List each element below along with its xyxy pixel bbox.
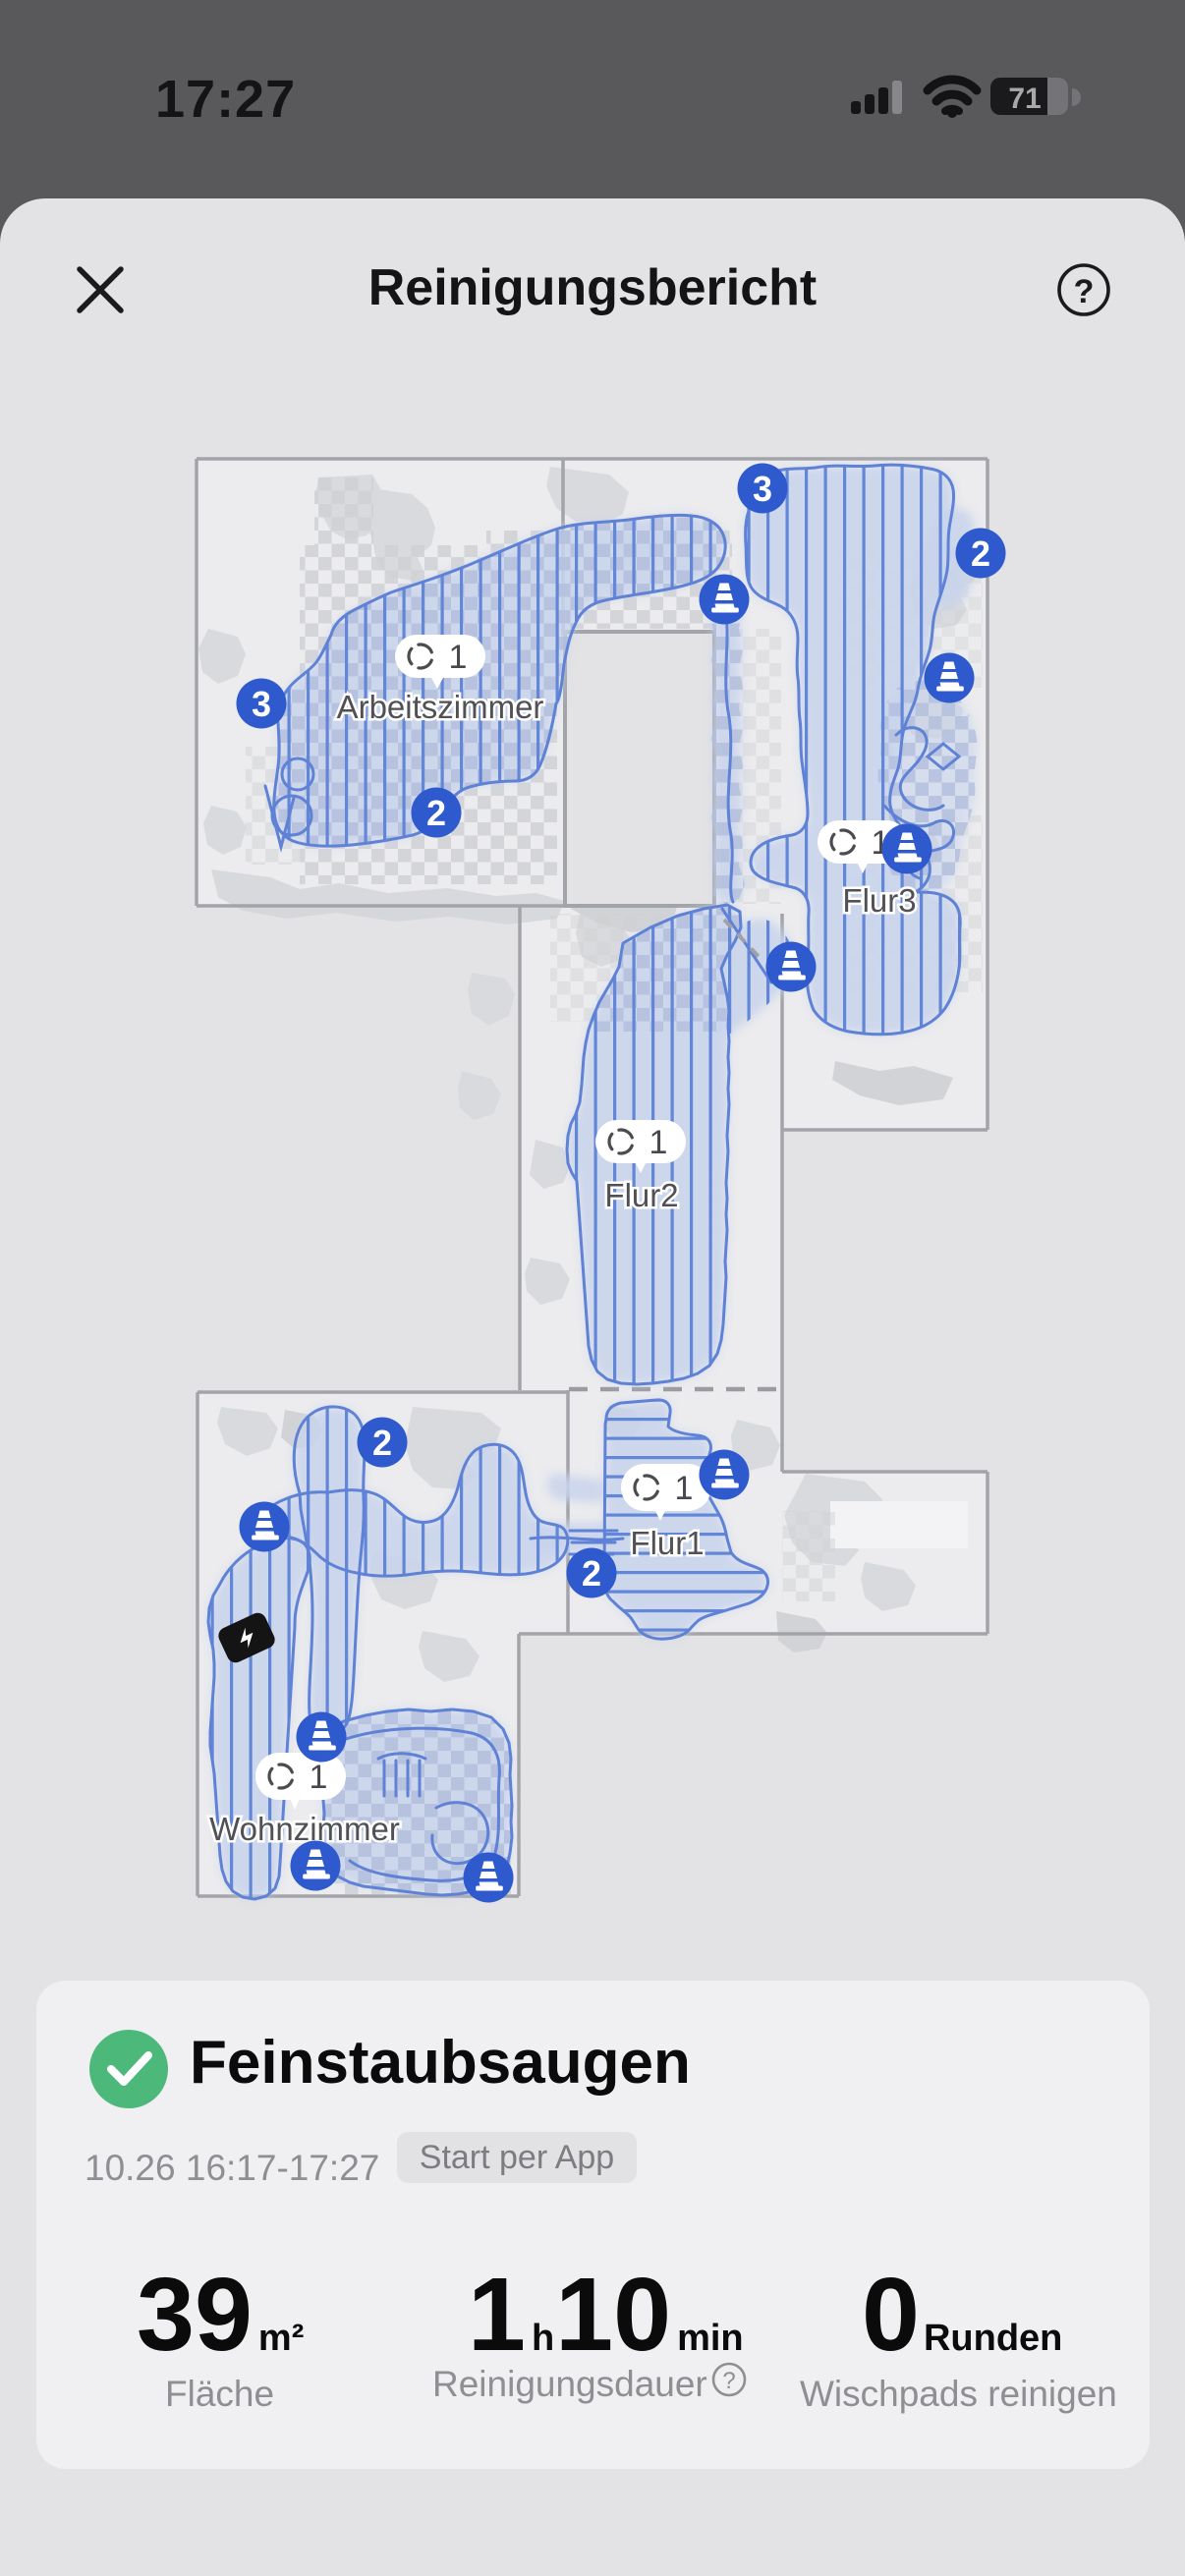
svg-text:1: 1: [675, 1470, 694, 1507]
svg-text:3: 3: [753, 469, 772, 509]
svg-text:2: 2: [971, 533, 990, 574]
svg-text:2: 2: [372, 1423, 392, 1463]
svg-text:Flur2: Flur2: [604, 1177, 678, 1213]
svg-text:Wohnzimmer: Wohnzimmer: [209, 1811, 400, 1847]
svg-text:Flur3: Flur3: [842, 882, 916, 919]
svg-text:Flur1: Flur1: [630, 1525, 704, 1561]
svg-text:1: 1: [310, 1759, 328, 1796]
svg-text:2: 2: [582, 1553, 601, 1594]
svg-text:1: 1: [449, 639, 468, 676]
svg-text:2: 2: [426, 793, 446, 833]
svg-text:Arbeitszimmer: Arbeitszimmer: [337, 689, 544, 725]
svg-text:1: 1: [649, 1124, 668, 1161]
svg-text:3: 3: [252, 684, 271, 724]
svg-text:?: ?: [722, 2368, 735, 2394]
